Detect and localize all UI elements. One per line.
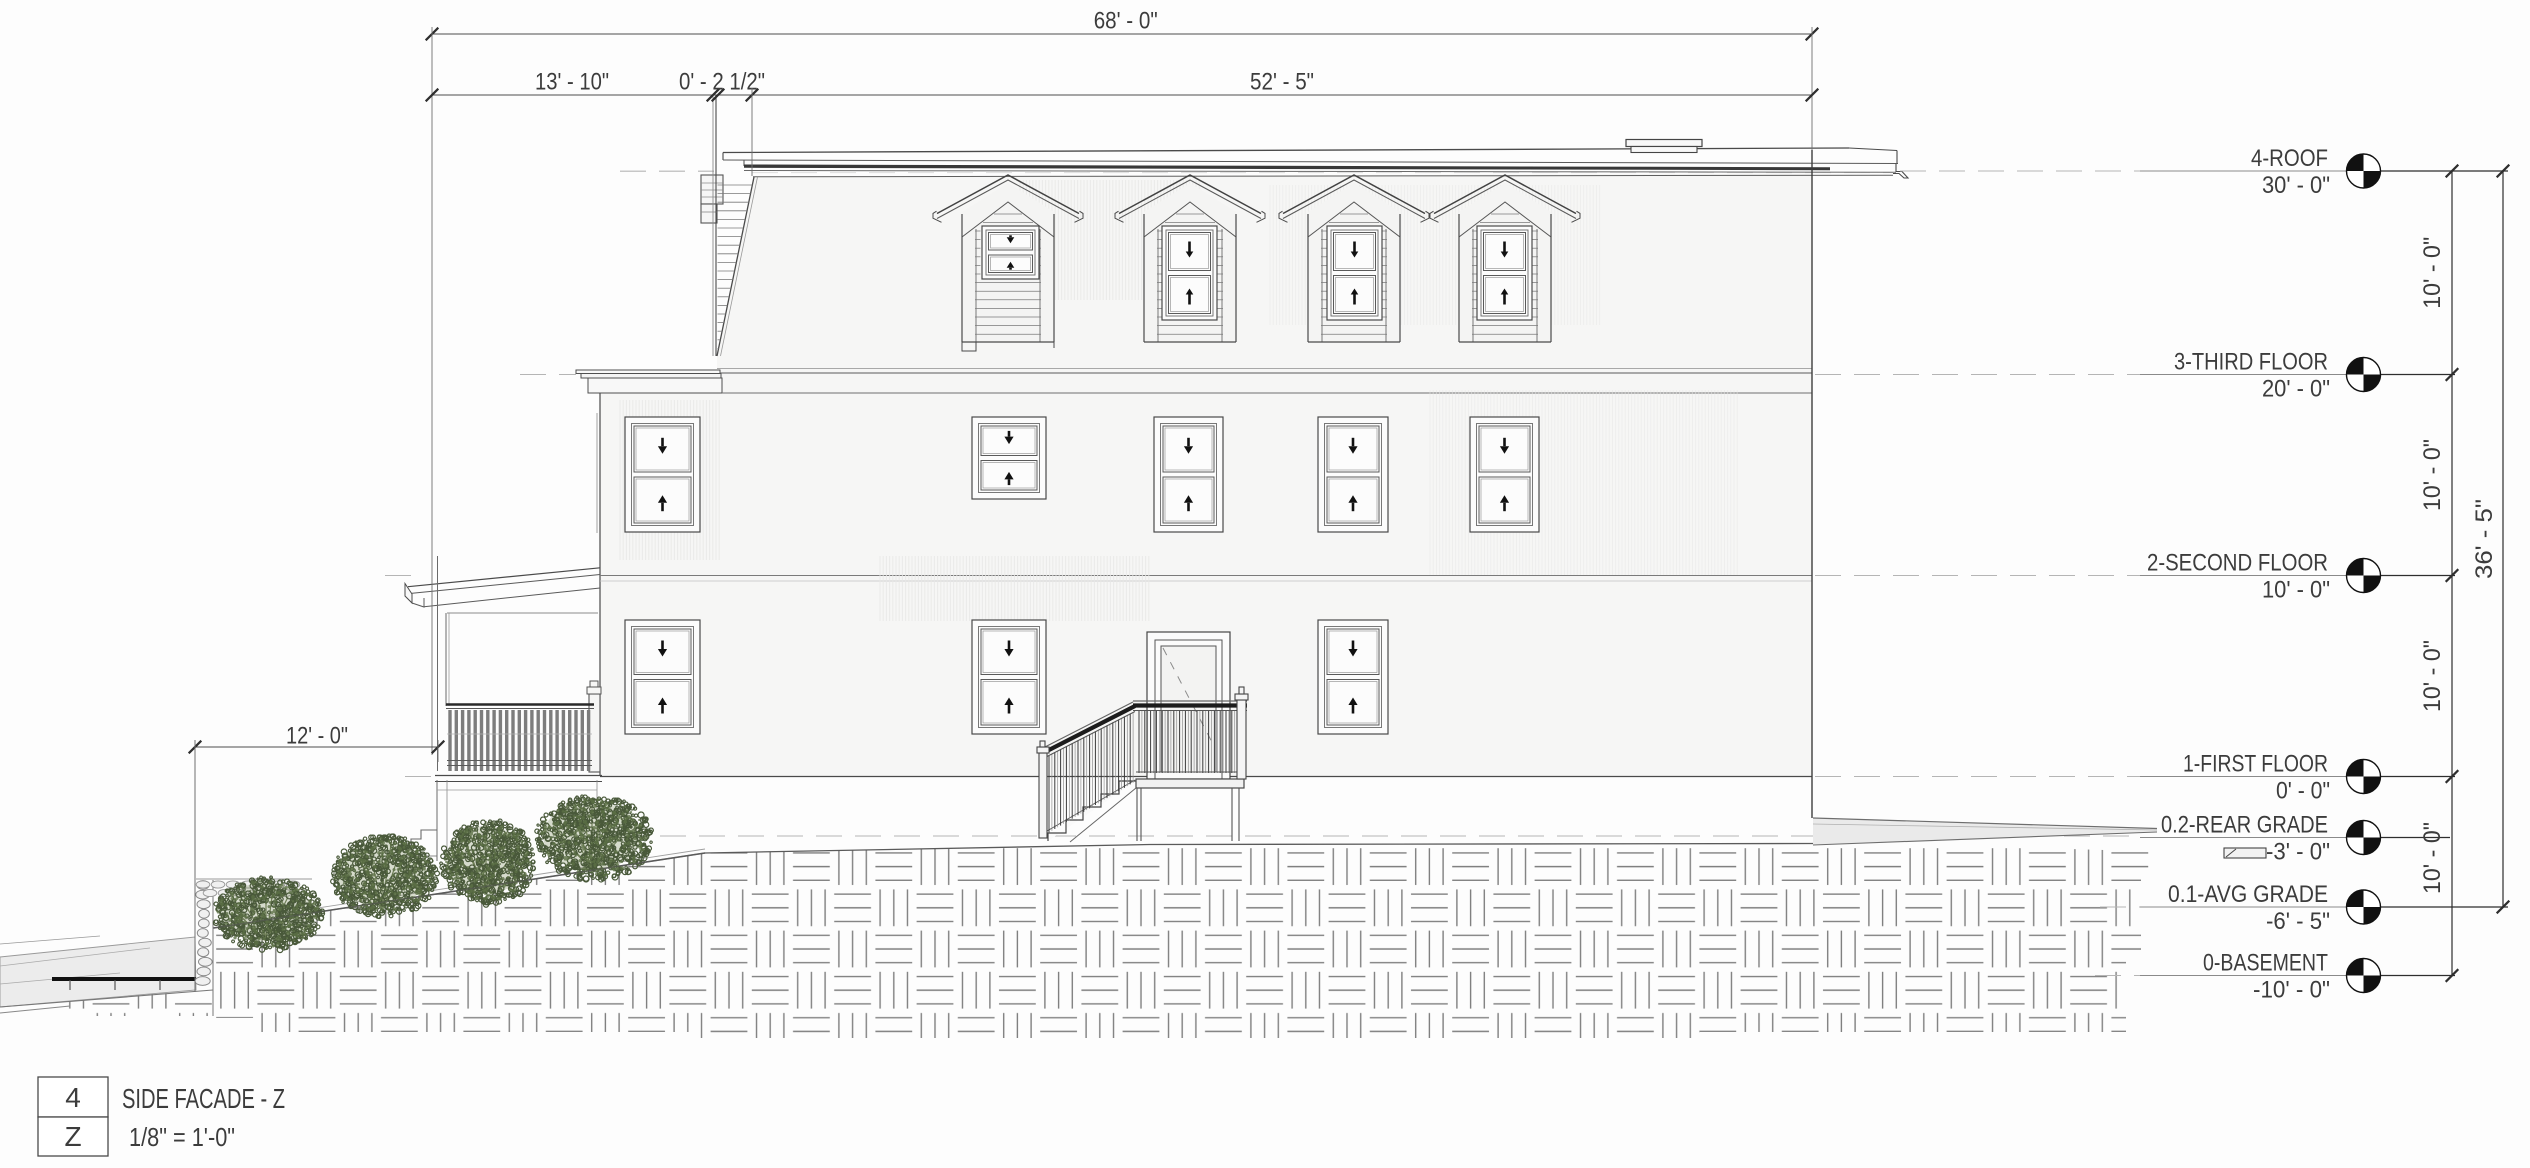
svg-text:1/8" = 1'-0": 1/8" = 1'-0" <box>129 1122 235 1152</box>
svg-text:10' - 0": 10' - 0" <box>2419 822 2446 894</box>
svg-text:1-FIRST FLOOR: 1-FIRST FLOOR <box>2183 751 2328 778</box>
svg-text:SIDE FACADE - Z: SIDE FACADE - Z <box>122 1083 285 1114</box>
svg-text:-6' - 5": -6' - 5" <box>2266 908 2330 935</box>
svg-text:4-ROOF: 4-ROOF <box>2251 145 2328 172</box>
svg-text:-10' - 0": -10' - 0" <box>2253 977 2330 1004</box>
svg-text:12' - 0": 12' - 0" <box>286 723 348 750</box>
svg-text:20' - 0": 20' - 0" <box>2262 376 2330 403</box>
svg-text:0-BASEMENT: 0-BASEMENT <box>2203 950 2328 977</box>
svg-text:2-SECOND FLOOR: 2-SECOND FLOOR <box>2147 550 2328 577</box>
svg-text:3-THIRD FLOOR: 3-THIRD FLOOR <box>2174 349 2328 376</box>
svg-text:10' - 0": 10' - 0" <box>2262 577 2330 604</box>
svg-text:0.2-REAR GRADE: 0.2-REAR GRADE <box>2161 812 2328 839</box>
svg-text:0.1-AVG GRADE: 0.1-AVG GRADE <box>2168 881 2328 908</box>
svg-text:30' - 0": 30' - 0" <box>2262 172 2330 199</box>
svg-text:0' - 0": 0' - 0" <box>2276 778 2330 805</box>
svg-text:52' - 5": 52' - 5" <box>1250 69 1314 96</box>
svg-text:68' - 0": 68' - 0" <box>1094 8 1158 35</box>
svg-text:10' - 0": 10' - 0" <box>2419 237 2446 309</box>
svg-text:Z: Z <box>64 1121 81 1152</box>
svg-text:10' - 0": 10' - 0" <box>2419 640 2446 712</box>
svg-text:13' - 10": 13' - 10" <box>535 69 609 96</box>
svg-text:36' - 5": 36' - 5" <box>2471 499 2498 579</box>
svg-text:10' - 0": 10' - 0" <box>2419 439 2446 511</box>
svg-text:4: 4 <box>65 1082 81 1113</box>
svg-text:-3' - 0": -3' - 0" <box>2266 839 2330 866</box>
